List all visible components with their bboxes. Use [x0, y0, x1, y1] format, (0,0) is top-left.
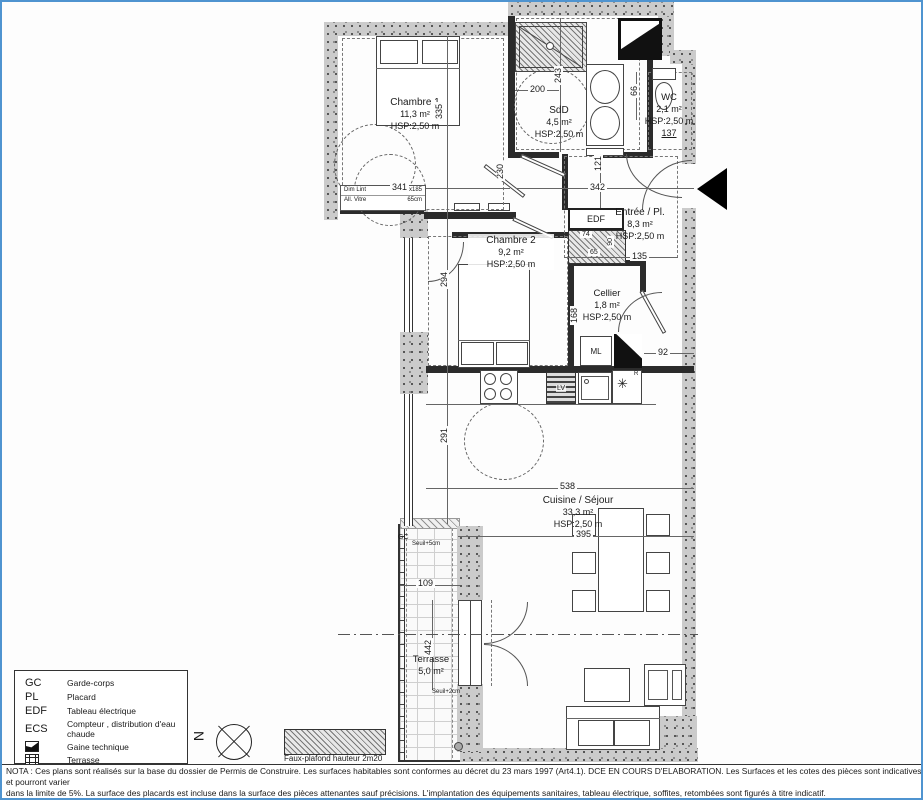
french-door-arc-top	[484, 602, 528, 644]
fridge-label: R	[634, 371, 638, 377]
sofa-cushion	[578, 720, 614, 746]
toilet-tank	[652, 68, 676, 80]
shower-drain	[546, 42, 554, 50]
terrasse-guardrail	[398, 524, 405, 762]
window-dim-label: Dim Lint	[344, 187, 366, 194]
terrasse-dash-right	[452, 528, 454, 758]
room-area: 33,3 m²	[530, 507, 626, 519]
dim-label: 341	[390, 183, 409, 192]
burner	[484, 388, 496, 400]
wall-segment	[457, 526, 483, 600]
dim-label: 92	[656, 348, 670, 357]
legend-row: PL Placard	[21, 690, 181, 704]
room-label-wc: WC 2,1 m² HSP:2,50 m 137	[642, 92, 696, 139]
dim-label: 342	[588, 183, 607, 192]
room-name: Cuisine / Séjour	[530, 494, 626, 507]
duct-wedge	[614, 334, 642, 368]
room-hsp: HSP:2,50 m	[468, 259, 554, 271]
legend-label: Gaine technique	[63, 740, 181, 753]
chair	[646, 552, 670, 574]
dim-label: 74	[580, 231, 592, 238]
washbasin	[590, 70, 620, 104]
terrasse-drain	[454, 742, 463, 751]
dishwasher: LV	[546, 372, 576, 404]
nota-block: NOTA : Ces plans sont réalisés sur la ba…	[2, 764, 923, 800]
dishwasher-label: LV	[556, 385, 566, 392]
room-name: SdD	[524, 104, 594, 117]
entrance-arrow	[697, 168, 727, 210]
wall-segment	[324, 22, 516, 36]
wall-segment	[655, 716, 697, 752]
room-name: Entrée / Pl.	[598, 206, 682, 219]
dim-label: 135	[630, 252, 649, 261]
burner	[500, 388, 512, 400]
nota-line: NOTA : Ces plans sont réalisés sur la ba…	[6, 766, 923, 788]
pillow	[422, 40, 458, 64]
legend-abbr: PL	[21, 690, 63, 704]
legend-label: Placard	[63, 690, 181, 704]
room-area: 4,5 m²	[524, 117, 594, 129]
seuil-label: Seuil+5cm	[412, 541, 440, 548]
room-hsp: HSP:2,50 m	[574, 312, 640, 324]
pillow	[461, 342, 494, 365]
nota-line: dans la limite de 5%. La surface des pla…	[6, 788, 923, 799]
dim-label: 168	[570, 306, 579, 325]
room-area: 8,3 m²	[598, 219, 682, 231]
wall-segment	[324, 22, 338, 220]
french-door-arc-bottom	[484, 644, 528, 686]
wall-segment	[400, 332, 428, 394]
room-label-sdd: SdD 4,5 m² HSP:2,50 m	[524, 104, 594, 140]
window-sill-label: All. Vitre	[344, 197, 366, 204]
legend-box: GC Garde-corps PL Placard EDF Tableau él…	[14, 670, 188, 764]
dim-label: 538	[558, 482, 577, 491]
room-name: Cellier	[574, 288, 640, 300]
room-name: Chambre 1	[362, 96, 468, 109]
room-name: Chambre 2	[468, 234, 554, 247]
room-label-terrasse: Terrasse 5,0 m²	[402, 654, 460, 678]
room-label-cellier: Cellier 1,8 m² HSP:2,50 m	[574, 288, 640, 324]
french-door-frame	[458, 600, 482, 686]
legend-label: Garde-corps	[63, 676, 181, 690]
fridge-snowflake-icon: ✳	[617, 376, 628, 392]
legend-row: GC Garde-corps	[21, 676, 181, 690]
wall-segment	[508, 16, 515, 158]
wall-segment	[640, 260, 646, 292]
burner	[500, 373, 512, 385]
legend-abbr: ECS	[21, 718, 63, 740]
dim-label: 294	[440, 270, 449, 289]
window	[404, 394, 413, 526]
washing-machine-label: ML	[590, 347, 601, 356]
room-hsp: HSP:2,50 m	[362, 121, 468, 133]
room-area: 5,0 m²	[402, 666, 460, 678]
axis-line	[338, 634, 698, 635]
room-hsp: HSP:2,50 m	[524, 129, 594, 141]
dim-label: 395	[574, 530, 593, 539]
legend-label: Compteur , distribution d'eau chaude	[63, 718, 181, 740]
north-label: N	[191, 731, 207, 741]
room-hsp: HSP:2,50 m	[642, 116, 696, 128]
window-annotation-box: Dim Lint 90x185 All. Vitre 65cm	[340, 185, 426, 211]
dim-label: 243	[554, 66, 563, 85]
faux-plafond-label: Faux-plafond hauteur 2m20	[284, 754, 382, 763]
room-area: 2,1 m²	[642, 104, 696, 116]
dim-label: 65	[588, 249, 600, 256]
legend-abbr: GC	[21, 676, 63, 690]
bed-line	[458, 340, 530, 341]
room-label-cuisine: Cuisine / Séjour 33,3 m² HSP:2,50 m	[530, 494, 626, 530]
clearance-circle	[464, 402, 544, 480]
faux-plafond-swatch	[284, 729, 386, 755]
chair	[646, 590, 670, 612]
wall-segment	[460, 748, 698, 762]
technical-duct-box	[614, 334, 642, 368]
pillow	[496, 342, 528, 365]
tv-unit-shelf	[672, 670, 682, 700]
washbasin	[590, 106, 620, 140]
seuil-label: Seuil+2cm	[432, 689, 460, 696]
dim-label: 90	[607, 236, 614, 248]
technical-duct-box	[618, 18, 662, 60]
room-area: 11,3 m²	[362, 109, 468, 121]
chair	[572, 552, 596, 574]
sofa-cushion	[614, 720, 650, 746]
north-compass-icon	[216, 724, 252, 760]
wall-segment	[424, 212, 516, 219]
burner	[484, 373, 496, 385]
washing-machine: ML	[580, 336, 612, 366]
dim-line	[564, 257, 678, 258]
dim-label: 109	[416, 579, 435, 588]
legend-row: EDF Tableau électrique	[21, 704, 181, 718]
dim-label: 442	[424, 638, 433, 657]
wall-segment	[682, 208, 696, 720]
gaine-technique-icon	[25, 741, 39, 752]
coffee-table	[584, 668, 630, 702]
wall-segment	[670, 50, 696, 64]
chair	[646, 514, 670, 536]
legend-label: Tableau électrique	[63, 704, 181, 718]
tv-unit-shelf	[648, 670, 668, 700]
dim-label: 200	[528, 85, 547, 94]
room-area: 9,2 m²	[468, 247, 554, 259]
faucet	[584, 379, 589, 384]
chair	[572, 590, 596, 612]
duct-wedge	[621, 21, 659, 57]
room-name: WC	[642, 92, 696, 104]
legend-abbr: EDF	[21, 704, 63, 718]
room-area: 1,8 m²	[574, 300, 640, 312]
legend-row: Gaine technique	[21, 740, 181, 753]
dim-label: 66	[630, 84, 639, 98]
wall-segment	[508, 2, 674, 16]
bath-shelf	[586, 148, 624, 156]
window	[404, 238, 413, 332]
dim-label: 335	[435, 102, 444, 121]
dim-label: 121	[594, 154, 603, 173]
legend-row: ECS Compteur , distribution d'eau chaude	[21, 718, 181, 740]
room-label-chambre2: Chambre 2 9,2 m² HSP:2,50 m	[468, 234, 554, 270]
terrasse-dash-left	[406, 528, 408, 758]
dim-label: 137	[642, 128, 696, 140]
pillow	[380, 40, 418, 64]
gc-label: GC	[398, 534, 409, 542]
dim-label: 291	[440, 426, 449, 445]
window-sill-value: 65cm	[407, 197, 422, 204]
sofa-back-line	[566, 718, 660, 719]
counter-edge-line	[426, 404, 656, 405]
dim-label: 230	[496, 162, 505, 181]
room-label-chambre1: Chambre 1 11,3 m² HSP:2,50 m	[362, 96, 468, 132]
floor-plan-page: Dim Lint 90x185 All. Vitre 65cm	[0, 0, 923, 800]
